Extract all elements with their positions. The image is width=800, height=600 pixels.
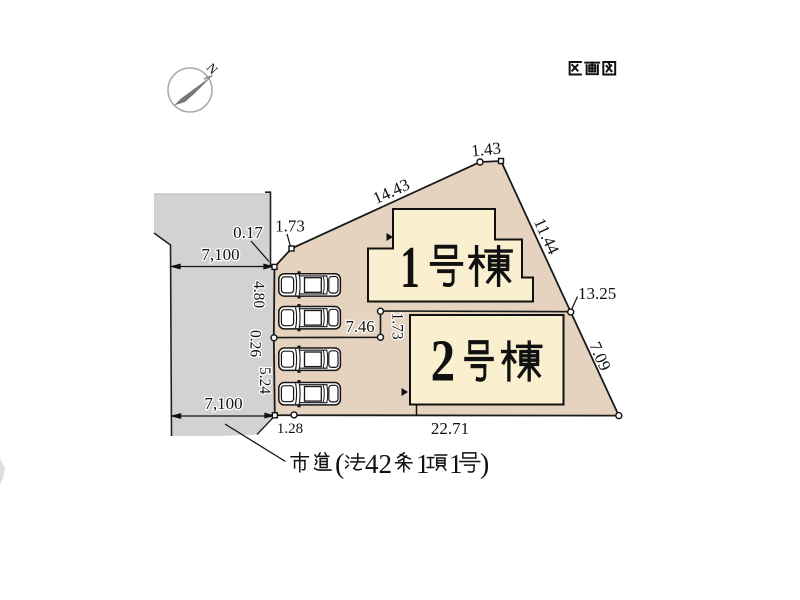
svg-text:0.26: 0.26 (247, 330, 264, 357)
svg-text:13.25: 13.25 (578, 284, 616, 303)
svg-text:22.71: 22.71 (431, 419, 469, 438)
svg-text:(: ( (335, 449, 344, 480)
svg-text:42: 42 (365, 449, 392, 479)
svg-text:1: 1 (416, 449, 430, 479)
svg-text:1.43: 1.43 (470, 138, 502, 160)
svg-text:1: 1 (400, 234, 419, 300)
svg-text:7,100: 7,100 (204, 394, 242, 413)
svg-text:): ) (480, 449, 489, 480)
svg-text:1.28: 1.28 (277, 421, 303, 437)
svg-text:0.17: 0.17 (233, 223, 263, 242)
svg-text:1: 1 (449, 449, 463, 479)
svg-text:5.24: 5.24 (256, 367, 273, 394)
svg-text:7.46: 7.46 (346, 317, 375, 336)
svg-text:1.73: 1.73 (275, 217, 305, 236)
svg-text:1.73: 1.73 (389, 312, 406, 339)
svg-text:4.80: 4.80 (250, 281, 267, 308)
svg-text:7,100: 7,100 (201, 245, 239, 264)
svg-text:2: 2 (431, 328, 455, 393)
